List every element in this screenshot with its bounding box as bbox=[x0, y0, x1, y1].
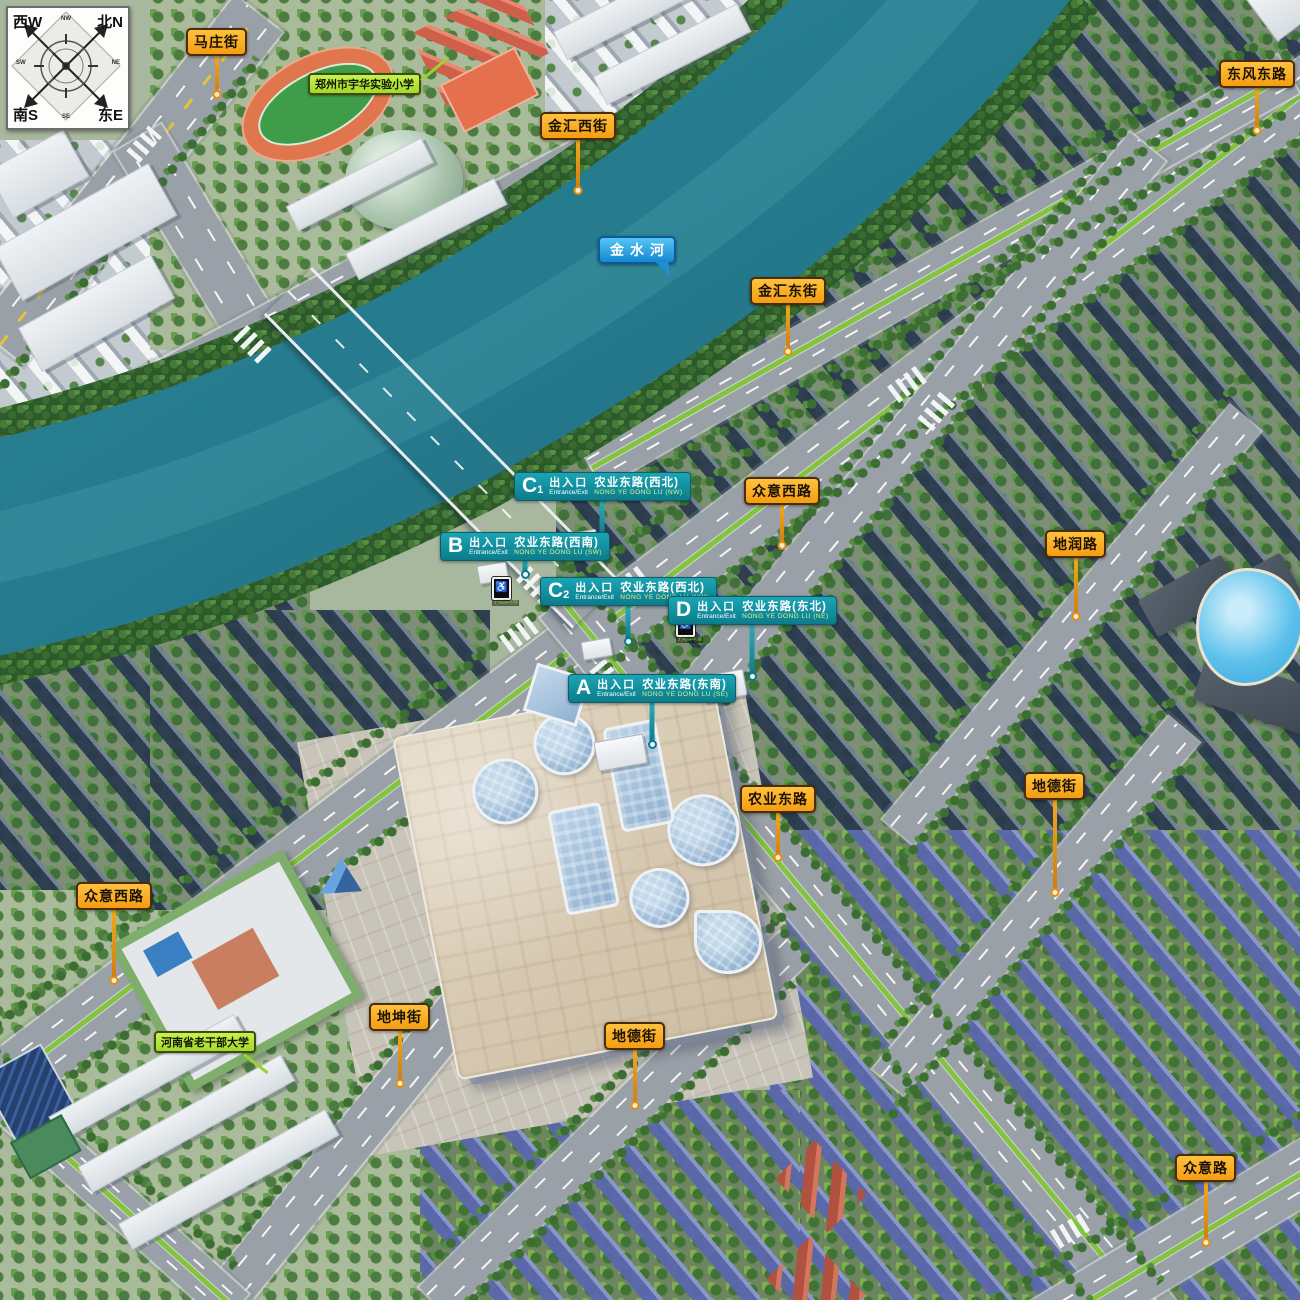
street-label-tag: 马庄街 bbox=[186, 28, 247, 56]
entrance-cn: 出入口 bbox=[697, 601, 736, 613]
entrance-en: Entrance/Exit bbox=[697, 613, 736, 620]
street-label-tag: 地德街 bbox=[1024, 772, 1085, 800]
label-stick bbox=[1255, 88, 1259, 130]
place-label-tag: 河南省老干部大学 bbox=[154, 1031, 256, 1053]
label-stick bbox=[786, 305, 790, 351]
entrance-road-cn: 农业东路(东北) bbox=[742, 601, 828, 614]
university-courtyard bbox=[191, 928, 279, 1010]
entrance-road-cn: 农业东路(西南) bbox=[514, 537, 602, 550]
mall-skylight-dome bbox=[467, 753, 544, 830]
street-label-tag: 地坤街 bbox=[369, 1003, 430, 1031]
label-stick bbox=[650, 703, 655, 745]
label-stick bbox=[626, 606, 631, 642]
street-label-dikun: 地坤街 bbox=[369, 1003, 430, 1031]
entrance-road-cn: 农业东路(西北) bbox=[594, 477, 682, 490]
street-label-tag: 众意路 bbox=[1175, 1154, 1236, 1182]
place-label-school: 郑州市宇华实验小学 bbox=[308, 73, 421, 95]
entrance-cn: 出入口 bbox=[469, 537, 508, 549]
compass-rose: 西W 北N 南S 东E NW NE SE SW bbox=[6, 6, 130, 130]
label-stick bbox=[750, 625, 755, 677]
compass-rose-se: SE bbox=[62, 114, 70, 120]
label-stick bbox=[523, 561, 528, 575]
street-label-dirun: 地润路 bbox=[1045, 530, 1106, 558]
river-label: 金水河 bbox=[598, 236, 676, 264]
street-label-tag: 金汇西街 bbox=[540, 112, 616, 140]
label-stick bbox=[398, 1031, 402, 1083]
swimming-pool bbox=[1196, 568, 1300, 686]
street-label-tag: 地德街 bbox=[604, 1022, 665, 1050]
street-label-zhongyi-west-mid: 众意西路 bbox=[744, 477, 820, 505]
label-stick bbox=[1204, 1182, 1208, 1242]
street-label-tag: 农业东路 bbox=[740, 785, 816, 813]
entrance-en: Entrance/Exit bbox=[597, 691, 636, 698]
street-label-dongfeng-east: 东风东路 bbox=[1219, 60, 1295, 88]
street-label-jinhui-west: 金汇西街 bbox=[540, 112, 616, 140]
compass-rose-sw: SW bbox=[16, 60, 26, 66]
street-label-tag: 众意西路 bbox=[76, 882, 152, 910]
entrance-cn: 出入口 bbox=[575, 582, 614, 594]
label-stick bbox=[780, 505, 784, 545]
place-label-tag: 郑州市宇华实验小学 bbox=[308, 73, 421, 95]
label-stick bbox=[776, 813, 780, 857]
map-canvas[interactable]: ♿ 无障碍电梯 ♿ 无障碍电梯 马庄街 金汇西街 金汇东街 东风东路 众意西路 … bbox=[0, 0, 1300, 1300]
compass-rose-nw: NW bbox=[61, 16, 71, 22]
entrance-letter: B bbox=[448, 537, 463, 556]
entrance-letter: A bbox=[576, 679, 591, 698]
compass-north: 北N bbox=[97, 11, 123, 32]
street-label-jinhui-east: 金汇东街 bbox=[750, 277, 826, 305]
river-label-tag: 金水河 bbox=[598, 236, 676, 264]
label-stick bbox=[1074, 558, 1078, 616]
entrance-road-cn: 农业东路(东南) bbox=[642, 679, 728, 692]
entrance-road-en: NONG YE DONG LU (SW) bbox=[514, 549, 602, 556]
entrance-road-cn: 农业东路(西北) bbox=[620, 582, 708, 595]
entrance-letter: D bbox=[676, 601, 691, 620]
entrance-label-a: A 出入口Entrance/Exit 农业东路(东南)NONG YE DONG … bbox=[568, 674, 736, 703]
mall-glass-fan bbox=[694, 910, 762, 974]
university-atrium bbox=[143, 931, 193, 977]
entrance-letter: C1 bbox=[522, 477, 543, 496]
compass-rose-ne: NE bbox=[112, 60, 120, 66]
street-label-zhongyi-west-left: 众意西路 bbox=[76, 882, 152, 910]
mall-skylight-strip bbox=[547, 801, 620, 915]
entrance-label-d: D 出入口Entrance/Exit 农业东路(东北)NONG YE DONG … bbox=[668, 596, 837, 625]
label-stick bbox=[215, 56, 219, 94]
entrance-label-c1: C1 出入口Entrance/Exit 农业东路(西北)NONG YE DONG… bbox=[514, 472, 691, 501]
entrance-cn: 出入口 bbox=[597, 679, 636, 691]
street-label-tag: 东风东路 bbox=[1219, 60, 1295, 88]
entrance-letter: C2 bbox=[548, 582, 569, 601]
label-stick bbox=[112, 910, 116, 980]
compass-east: 东E bbox=[98, 104, 123, 125]
mall-skylight-dome bbox=[661, 788, 745, 872]
entrance-road-en: NONG YE DONG LU (NW) bbox=[594, 489, 682, 496]
street-label-dide-south: 地德街 bbox=[604, 1022, 665, 1050]
wheelchair-icon: ♿ bbox=[492, 577, 511, 600]
street-label-tag: 地润路 bbox=[1045, 530, 1106, 558]
label-stick bbox=[1053, 800, 1057, 892]
street-label-nongye-east: 农业东路 bbox=[740, 785, 816, 813]
accessible-elevator-sign: ♿ 无障碍电梯 bbox=[492, 577, 519, 606]
label-stick bbox=[576, 140, 580, 190]
entrance-en: Entrance/Exit bbox=[549, 489, 588, 496]
street-label-dide-right: 地德街 bbox=[1024, 772, 1085, 800]
compass-west: 西W bbox=[13, 11, 42, 32]
entrance-label-b: B 出入口Entrance/Exit 农业东路(西南)NONG YE DONG … bbox=[440, 532, 610, 561]
entrance-cn: 出入口 bbox=[549, 477, 588, 489]
street-label-tag: 金汇东街 bbox=[750, 277, 826, 305]
compass-south: 南S bbox=[13, 104, 38, 125]
street-label-tag: 众意西路 bbox=[744, 477, 820, 505]
entrance-en: Entrance/Exit bbox=[575, 594, 614, 601]
mall-skylight-dome bbox=[624, 863, 694, 933]
label-stick bbox=[633, 1050, 637, 1105]
entrance-en: Entrance/Exit bbox=[469, 549, 508, 556]
street-label-zhongyi: 众意路 bbox=[1175, 1154, 1236, 1182]
entrance-road-en: NONG YE DONG LU (SE) bbox=[642, 691, 728, 698]
place-label-university: 河南省老干部大学 bbox=[154, 1031, 256, 1053]
entrance-road-en: NONG YE DONG LU (NE) bbox=[742, 613, 828, 620]
street-label-mazhuang: 马庄街 bbox=[186, 28, 247, 56]
shopping-mall-building bbox=[392, 676, 779, 1081]
